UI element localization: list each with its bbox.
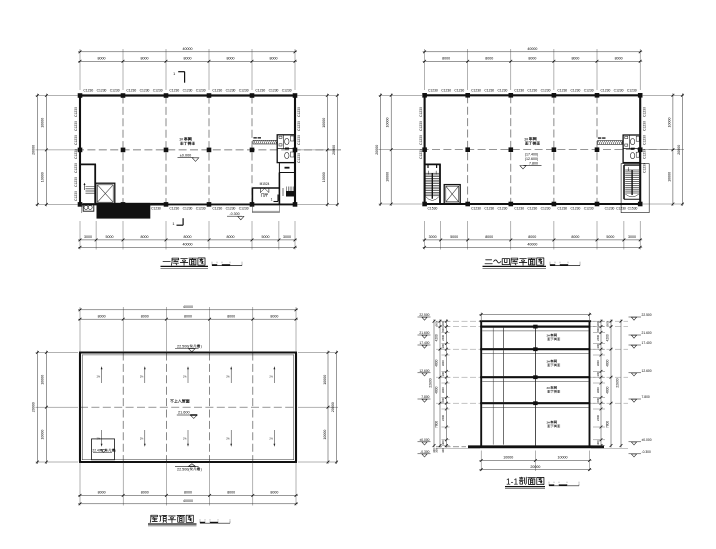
svg-text:8000: 8000: [571, 235, 579, 239]
svg-text:C1230: C1230: [471, 206, 481, 210]
svg-text:12.600: 12.600: [419, 369, 429, 373]
svg-text:C1230: C1230: [169, 89, 179, 93]
svg-text:-0.300: -0.300: [420, 450, 430, 454]
svg-text:(12.600): (12.600): [525, 157, 538, 161]
svg-text:C1230: C1230: [571, 89, 581, 93]
svg-text:300: 300: [441, 440, 445, 445]
svg-text:3000: 3000: [283, 235, 291, 239]
svg-text:C1230: C1230: [74, 149, 78, 159]
svg-text:40000: 40000: [183, 305, 193, 309]
svg-text:C1230: C1230: [226, 89, 236, 93]
svg-text:C1230: C1230: [74, 191, 78, 201]
svg-text:C1230: C1230: [151, 207, 161, 211]
svg-text:22800: 22800: [428, 378, 432, 387]
svg-text:7.800: 7.800: [421, 395, 429, 399]
svg-text:8000: 8000: [98, 57, 106, 61]
svg-text:4800: 4800: [435, 359, 439, 366]
svg-text:3000: 3000: [596, 387, 600, 393]
svg-text:C1230: C1230: [74, 135, 78, 145]
svg-text:C1230: C1230: [643, 107, 647, 117]
svg-text:8000: 8000: [442, 57, 450, 61]
svg-text:C1230: C1230: [557, 89, 567, 93]
svg-text:C1230: C1230: [153, 89, 163, 93]
svg-text:8000: 8000: [184, 314, 192, 318]
svg-text:22800: 22800: [616, 378, 620, 387]
svg-text:): ): [201, 467, 202, 471]
svg-text:17.400: 17.400: [419, 341, 429, 345]
svg-text:0: 0: [230, 519, 231, 521]
svg-text:C1230: C1230: [419, 121, 423, 131]
svg-text:8000: 8000: [141, 314, 149, 318]
svg-text:900: 900: [606, 321, 610, 326]
svg-text:M1524: M1524: [260, 182, 270, 186]
svg-text:C1230: C1230: [419, 107, 423, 117]
svg-text:C1230: C1230: [196, 207, 206, 211]
svg-text:C1230: C1230: [527, 89, 537, 93]
svg-text:0: 0: [217, 262, 218, 264]
svg-text:C1230: C1230: [428, 89, 438, 93]
svg-text:7800: 7800: [435, 421, 439, 428]
svg-text:0: 0: [568, 262, 569, 264]
svg-text:±0.000: ±0.000: [180, 154, 192, 158]
svg-text:10000: 10000: [323, 430, 327, 440]
svg-text:C1230: C1230: [282, 89, 292, 93]
svg-text:40000: 40000: [183, 47, 193, 51]
svg-text:1: 1: [173, 72, 175, 76]
svg-text:10000: 10000: [41, 375, 45, 385]
svg-text:(17.400): (17.400): [525, 153, 538, 157]
svg-text:10000: 10000: [558, 456, 568, 460]
svg-text:22.500(: 22.500(: [177, 345, 190, 349]
svg-text:C1530: C1530: [628, 206, 638, 210]
svg-text:10000: 10000: [668, 172, 672, 182]
svg-text:8000: 8000: [98, 314, 106, 318]
svg-text:4800: 4800: [606, 359, 610, 366]
svg-text:): ): [201, 345, 202, 349]
svg-text:10000: 10000: [386, 172, 390, 182]
svg-text:20000: 20000: [375, 145, 379, 155]
svg-text:40000: 40000: [183, 499, 193, 503]
svg-text:C1230: C1230: [614, 89, 624, 93]
svg-text:C1230: C1230: [441, 89, 451, 93]
svg-text:2400: 2400: [441, 415, 445, 421]
svg-text:3000: 3000: [628, 235, 636, 239]
svg-text:C1230: C1230: [97, 89, 107, 93]
svg-text:0: 0: [579, 482, 580, 484]
svg-text:22.500(: 22.500(: [177, 467, 190, 471]
svg-text:C1230: C1230: [484, 206, 494, 210]
svg-text:C1230: C1230: [643, 121, 647, 131]
svg-text:3000: 3000: [596, 360, 600, 366]
svg-text:7.800: 7.800: [529, 161, 538, 165]
svg-text:C1230: C1230: [498, 206, 508, 210]
svg-text:600: 600: [596, 398, 600, 403]
svg-text:20000: 20000: [32, 402, 36, 412]
svg-text:8000: 8000: [184, 491, 192, 495]
svg-text:3#: 3#: [546, 386, 550, 390]
svg-text:600: 600: [441, 398, 445, 403]
svg-text:0: 0: [212, 262, 213, 264]
svg-text:10000: 10000: [668, 118, 672, 128]
svg-text:22.500: 22.500: [642, 313, 652, 317]
svg-text:10000: 10000: [503, 456, 513, 460]
svg-text:22.500: 22.500: [419, 313, 429, 317]
svg-text:): ): [114, 448, 115, 452]
svg-text:1-1: 1-1: [506, 477, 518, 487]
svg-text:±0.000: ±0.000: [642, 438, 652, 442]
svg-text:C1230: C1230: [196, 89, 206, 93]
svg-text:C1230: C1230: [541, 89, 551, 93]
svg-text:20000: 20000: [32, 145, 36, 155]
svg-text:C1230: C1230: [239, 89, 249, 93]
svg-text:8000: 8000: [270, 57, 278, 61]
svg-text:300: 300: [441, 372, 445, 377]
svg-text:17.400: 17.400: [642, 341, 652, 345]
svg-text:C1230: C1230: [255, 89, 265, 93]
svg-text:10000: 10000: [41, 430, 45, 440]
svg-text:8000: 8000: [227, 57, 235, 61]
svg-text:10000: 10000: [322, 172, 326, 182]
svg-text:4800: 4800: [435, 386, 439, 393]
svg-text:4200: 4200: [606, 334, 610, 341]
svg-text:21.600: 21.600: [419, 331, 429, 335]
svg-text:8000: 8000: [528, 235, 536, 239]
svg-text:C1230: C1230: [514, 89, 524, 93]
svg-text:1: 1: [271, 198, 273, 202]
svg-text:40000: 40000: [183, 243, 193, 247]
svg-text:C1230: C1230: [584, 206, 594, 210]
svg-text:0: 0: [580, 262, 581, 264]
svg-text:0: 0: [555, 262, 556, 264]
svg-text:3#: 3#: [179, 138, 183, 142]
svg-text:8000: 8000: [485, 235, 493, 239]
svg-text:20000: 20000: [677, 145, 681, 155]
svg-text:C1230: C1230: [514, 206, 524, 210]
svg-text:300: 300: [596, 321, 600, 326]
svg-text:C1230: C1230: [484, 89, 494, 93]
svg-text:0: 0: [242, 262, 243, 264]
svg-text:C1230: C1230: [584, 89, 594, 93]
svg-text:C1230: C1230: [83, 89, 93, 93]
svg-text:600: 600: [596, 327, 600, 332]
svg-text:C1230: C1230: [126, 89, 136, 93]
svg-text:300: 300: [596, 372, 600, 377]
svg-text:C1230: C1230: [527, 206, 537, 210]
svg-text:0: 0: [218, 519, 219, 521]
svg-text:C1230: C1230: [643, 149, 647, 159]
svg-text:3000: 3000: [441, 387, 445, 393]
svg-text:C1230: C1230: [297, 121, 301, 131]
svg-text:3#: 3#: [524, 137, 528, 141]
svg-text:C1230: C1230: [643, 135, 647, 145]
svg-text:C1230: C1230: [74, 107, 78, 117]
svg-text:300: 300: [435, 448, 439, 453]
svg-text:300: 300: [441, 448, 445, 453]
svg-text:C1230: C1230: [269, 89, 279, 93]
svg-text:C1230: C1230: [571, 206, 581, 210]
svg-text:8000: 8000: [615, 57, 623, 61]
svg-text:10000: 10000: [323, 375, 327, 385]
svg-text:8000: 8000: [227, 491, 235, 495]
svg-text:3000: 3000: [84, 235, 92, 239]
svg-text:8000: 8000: [141, 235, 149, 239]
svg-text:C1230: C1230: [212, 207, 222, 211]
svg-text:C1230: C1230: [297, 107, 301, 117]
svg-text:20000: 20000: [530, 465, 540, 469]
svg-text:2400: 2400: [441, 334, 445, 340]
svg-text:C1230: C1230: [110, 89, 120, 93]
svg-text:4200: 4200: [435, 334, 439, 341]
svg-text:8000: 8000: [270, 491, 278, 495]
svg-text:-0.300: -0.300: [229, 212, 239, 216]
svg-text:C1230: C1230: [212, 89, 222, 93]
svg-text:C1230: C1230: [454, 89, 464, 93]
svg-text:5000: 5000: [450, 235, 458, 239]
svg-text:8000: 8000: [270, 314, 278, 318]
svg-text:8000: 8000: [227, 235, 235, 239]
svg-text:8000: 8000: [184, 235, 192, 239]
svg-text:300: 300: [596, 440, 600, 445]
svg-text:C1230: C1230: [419, 149, 423, 159]
svg-text:0: 0: [549, 482, 550, 484]
svg-text:40000: 40000: [527, 47, 537, 51]
svg-text:900: 900: [435, 321, 439, 326]
svg-text:8000: 8000: [571, 57, 579, 61]
svg-text:0: 0: [559, 482, 560, 484]
svg-text:0: 0: [222, 262, 223, 264]
svg-text:40000: 40000: [527, 243, 537, 247]
svg-text:8000: 8000: [98, 491, 106, 495]
svg-text:8000: 8000: [141, 491, 149, 495]
svg-text:C1230: C1230: [627, 89, 637, 93]
svg-text:C1230: C1230: [297, 135, 301, 145]
svg-text:4800: 4800: [606, 386, 610, 393]
svg-text:8000: 8000: [528, 57, 536, 61]
svg-text:10000: 10000: [41, 172, 45, 182]
svg-text:0: 0: [550, 262, 551, 264]
svg-text:0: 0: [200, 519, 201, 521]
svg-text:600: 600: [441, 327, 445, 332]
svg-text:C1230: C1230: [471, 89, 481, 93]
svg-text:5000: 5000: [106, 235, 114, 239]
svg-text:C1230: C1230: [74, 177, 78, 187]
svg-text:0: 0: [560, 262, 561, 264]
svg-text:C1230: C1230: [74, 163, 78, 173]
svg-text:8000: 8000: [184, 57, 192, 61]
svg-text:-0.300: -0.300: [642, 450, 652, 454]
svg-text:C1530: C1530: [427, 206, 437, 210]
svg-text:C1230: C1230: [498, 89, 508, 93]
svg-text:C1230: C1230: [183, 207, 193, 211]
svg-text:21.600: 21.600: [642, 331, 652, 335]
svg-text:C1230: C1230: [183, 89, 193, 93]
svg-text:C1230: C1230: [74, 121, 78, 131]
svg-text:C1230: C1230: [169, 207, 179, 211]
svg-text:0: 0: [205, 519, 206, 521]
svg-text:3#: 3#: [546, 334, 550, 338]
svg-text:20000: 20000: [331, 402, 335, 412]
svg-text:5000: 5000: [606, 235, 614, 239]
svg-text:10000: 10000: [322, 118, 326, 128]
svg-text:5000: 5000: [262, 235, 270, 239]
svg-text:3#: 3#: [546, 421, 550, 425]
svg-text:20000: 20000: [332, 145, 336, 155]
svg-text:21.600: 21.600: [178, 411, 190, 415]
svg-text:C1230: C1230: [239, 207, 249, 211]
svg-text:C1230: C1230: [600, 89, 610, 93]
svg-text:0: 0: [210, 519, 211, 521]
svg-text:8000: 8000: [485, 57, 493, 61]
svg-text:±0.000: ±0.000: [419, 438, 429, 442]
svg-text:2400: 2400: [596, 334, 600, 340]
svg-text:0: 0: [554, 482, 555, 484]
svg-text:3000: 3000: [441, 360, 445, 366]
svg-text:0: 0: [230, 262, 231, 264]
svg-text:10000: 10000: [41, 118, 45, 128]
svg-text:C1230: C1230: [297, 153, 301, 163]
svg-text:C1230: C1230: [541, 206, 551, 210]
svg-text:C1230: C1230: [419, 135, 423, 145]
svg-text:3000: 3000: [429, 235, 437, 239]
svg-text:12.600: 12.600: [642, 369, 652, 373]
svg-text:1: 1: [172, 222, 174, 226]
svg-text:C1230: C1230: [605, 206, 615, 210]
svg-text:300: 300: [441, 344, 445, 349]
svg-text:300: 300: [596, 344, 600, 349]
svg-text:8000: 8000: [227, 314, 235, 318]
svg-text:300: 300: [441, 321, 445, 326]
svg-text:C1230: C1230: [140, 89, 150, 93]
svg-text:0: 0: [567, 482, 568, 484]
svg-text:C1230: C1230: [557, 206, 567, 210]
svg-text:7.800: 7.800: [642, 395, 650, 399]
svg-text:C1230: C1230: [643, 163, 647, 173]
svg-text:7800: 7800: [606, 421, 610, 428]
svg-text:2400: 2400: [596, 415, 600, 421]
svg-text:10000: 10000: [386, 118, 390, 128]
svg-text:C1230: C1230: [226, 207, 236, 211]
svg-text:3#: 3#: [546, 360, 550, 364]
svg-text:8000: 8000: [141, 57, 149, 61]
